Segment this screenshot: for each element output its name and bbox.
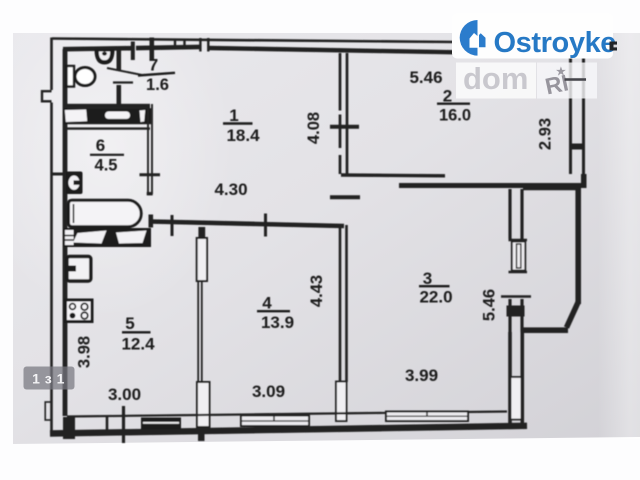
svg-text:22.0: 22.0 xyxy=(419,288,452,307)
svg-text:4.43: 4.43 xyxy=(308,275,326,307)
svg-text:12.4: 12.4 xyxy=(121,335,155,354)
svg-text:18.4: 18.4 xyxy=(226,126,260,145)
svg-text:1.6: 1.6 xyxy=(146,76,169,94)
svg-text:13.9: 13.9 xyxy=(261,313,294,332)
svg-text:7: 7 xyxy=(149,56,158,75)
svg-text:2.93: 2.93 xyxy=(537,118,555,150)
svg-text:Ostroyke: Ostroyke xyxy=(494,27,617,59)
svg-text:16.0: 16.0 xyxy=(439,107,471,125)
svg-text:3.99: 3.99 xyxy=(405,366,438,385)
svg-text:5.46: 5.46 xyxy=(409,68,442,87)
svg-text:4.5: 4.5 xyxy=(95,157,118,175)
svg-text:5: 5 xyxy=(125,314,134,333)
svg-text:dom: dom xyxy=(463,61,528,96)
svg-text:4.08: 4.08 xyxy=(305,112,323,144)
svg-text:6: 6 xyxy=(96,136,105,155)
svg-text:1 з 1: 1 з 1 xyxy=(32,371,65,387)
svg-text:4: 4 xyxy=(262,294,272,313)
svg-text:★: ★ xyxy=(556,66,566,78)
svg-text:4.30: 4.30 xyxy=(214,180,247,199)
svg-text:1: 1 xyxy=(229,106,238,125)
svg-text:3.98: 3.98 xyxy=(76,336,94,368)
svg-text:5.46: 5.46 xyxy=(481,289,499,321)
svg-text:3.09: 3.09 xyxy=(252,382,285,401)
svg-text:3.00: 3.00 xyxy=(108,385,141,404)
